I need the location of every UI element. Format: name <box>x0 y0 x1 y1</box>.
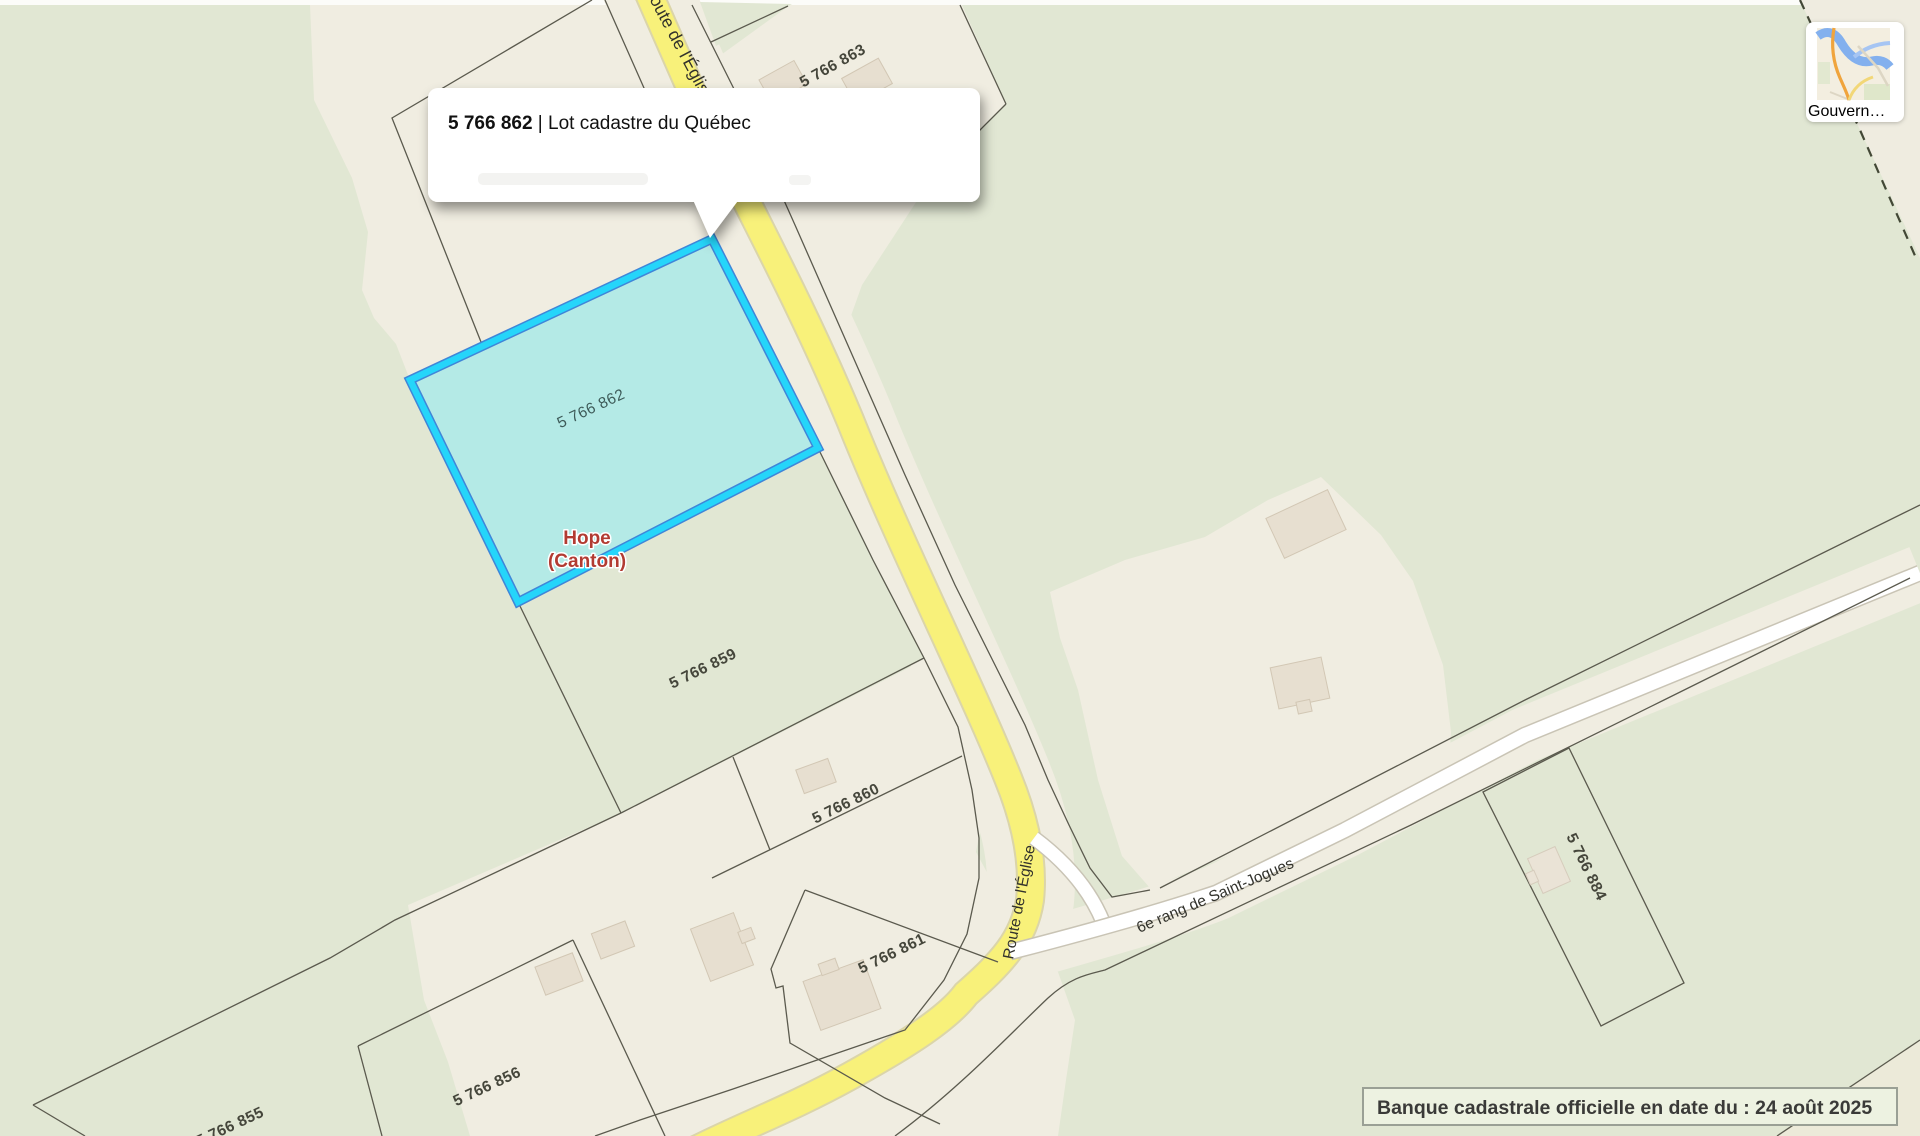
svg-text:Hope: Hope <box>563 528 611 549</box>
svg-text:Gouvern…: Gouvern… <box>1808 103 1885 120</box>
svg-text:(Canton): (Canton) <box>548 551 626 572</box>
svg-text:5 766 862 | Lot cadastre du Qu: 5 766 862 | Lot cadastre du Québec <box>448 113 751 134</box>
svg-text:Banque cadastrale officielle e: Banque cadastrale officielle en date du … <box>1377 1097 1872 1119</box>
